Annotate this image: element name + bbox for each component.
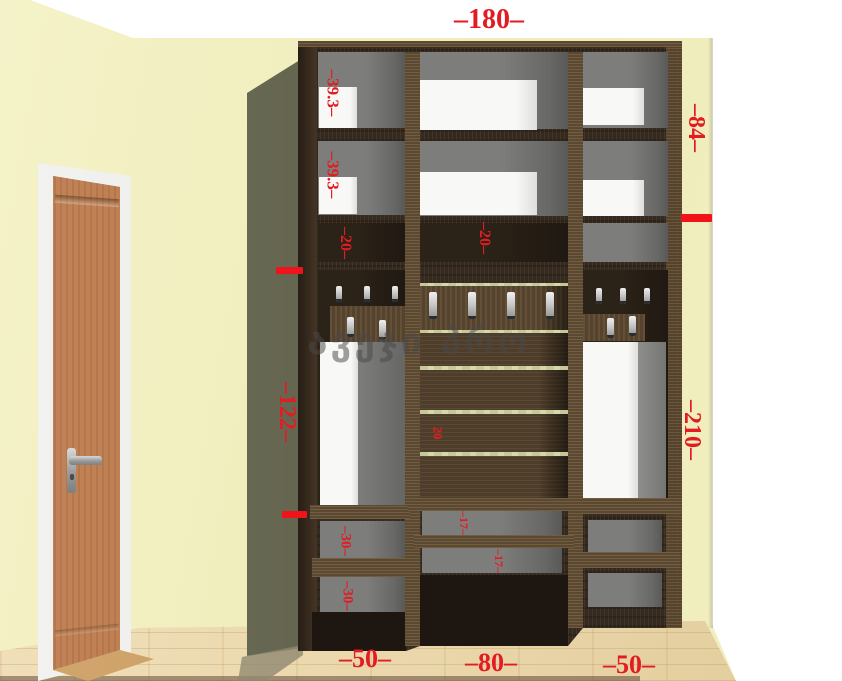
dimension-center-shelf-17-lower: –17– xyxy=(493,549,505,573)
shelf-compartment xyxy=(588,573,662,607)
storage-box xyxy=(420,172,537,215)
slat-strip xyxy=(420,410,568,414)
dimension-left-shelf-30-lower: –30– xyxy=(340,581,355,611)
coat-hook xyxy=(468,292,476,319)
plinth xyxy=(420,575,568,646)
shelf-compartment xyxy=(320,577,405,612)
dimension-total-width: –180– xyxy=(454,6,524,34)
coat-hook xyxy=(364,286,370,302)
dimension-tick xyxy=(681,214,712,222)
dimension-center-gap-20: –20– xyxy=(476,222,492,254)
shelf xyxy=(580,552,680,568)
wardrobe-right-side-panel xyxy=(666,41,682,628)
mirror-panel xyxy=(320,342,358,505)
shelf-compartment xyxy=(588,520,662,552)
coat-hook xyxy=(596,288,602,304)
compartment-back xyxy=(358,342,405,505)
slat-strip xyxy=(420,452,568,456)
dimension-left-gap-20: –20– xyxy=(337,227,353,259)
coat-hook xyxy=(392,286,398,302)
dimension-bottom-width-left: –50– xyxy=(339,646,391,672)
slat-strip xyxy=(420,283,568,286)
shelf-compartment xyxy=(422,511,562,535)
compartment-back xyxy=(583,223,668,262)
dimension-left-middle-height: –122– xyxy=(275,382,299,442)
shelf xyxy=(310,505,410,519)
door-keyhole xyxy=(70,474,74,480)
shelf xyxy=(414,535,574,548)
compartment-back xyxy=(638,342,666,498)
bench-top xyxy=(408,498,580,511)
coat-hook xyxy=(336,286,342,302)
coat-hook xyxy=(507,292,515,319)
door-handle-plate xyxy=(67,448,76,493)
watermark: ავეჯი პრო xyxy=(307,320,531,363)
slat-strip xyxy=(420,366,568,370)
storage-box xyxy=(420,80,537,130)
coat-hook xyxy=(644,288,650,304)
scene-canvas: ავეჯი პრო –180– –84– –210– –122– –39.3– … xyxy=(0,0,842,681)
dimension-tick xyxy=(276,267,303,274)
panel-shadow xyxy=(538,286,568,505)
dimension-shelf-39-top: –39.3– xyxy=(325,70,342,117)
mirror-panel xyxy=(583,342,638,498)
compartment-back xyxy=(318,223,405,262)
coat-hook xyxy=(546,292,554,319)
door-handle-lever xyxy=(69,456,102,465)
dimension-right-height: –210– xyxy=(680,400,704,460)
dimension-center-shelf-17-upper: –17– xyxy=(458,511,470,535)
shelf-compartment xyxy=(320,521,405,558)
dimension-upper-height: –84– xyxy=(684,104,708,152)
storage-box xyxy=(583,88,644,125)
dimension-left-shelf-30-upper: –30– xyxy=(338,526,353,556)
dimension-shelf-39-second: –39.3– xyxy=(325,152,342,199)
shelf xyxy=(578,498,682,514)
coat-hook xyxy=(629,316,636,336)
coat-hook xyxy=(620,288,626,304)
dimension-bottom-width-right: –50– xyxy=(603,652,655,678)
coat-hook xyxy=(429,292,437,319)
dimension-slat-gap-20: 20 xyxy=(432,427,445,440)
coat-hook xyxy=(607,318,614,338)
dimension-tick xyxy=(282,511,307,518)
wardrobe-top-edge xyxy=(298,41,682,47)
dimension-bottom-width-center: –80– xyxy=(465,650,517,676)
compartment-back xyxy=(420,223,568,262)
storage-box xyxy=(583,180,644,216)
shelf xyxy=(312,558,408,577)
